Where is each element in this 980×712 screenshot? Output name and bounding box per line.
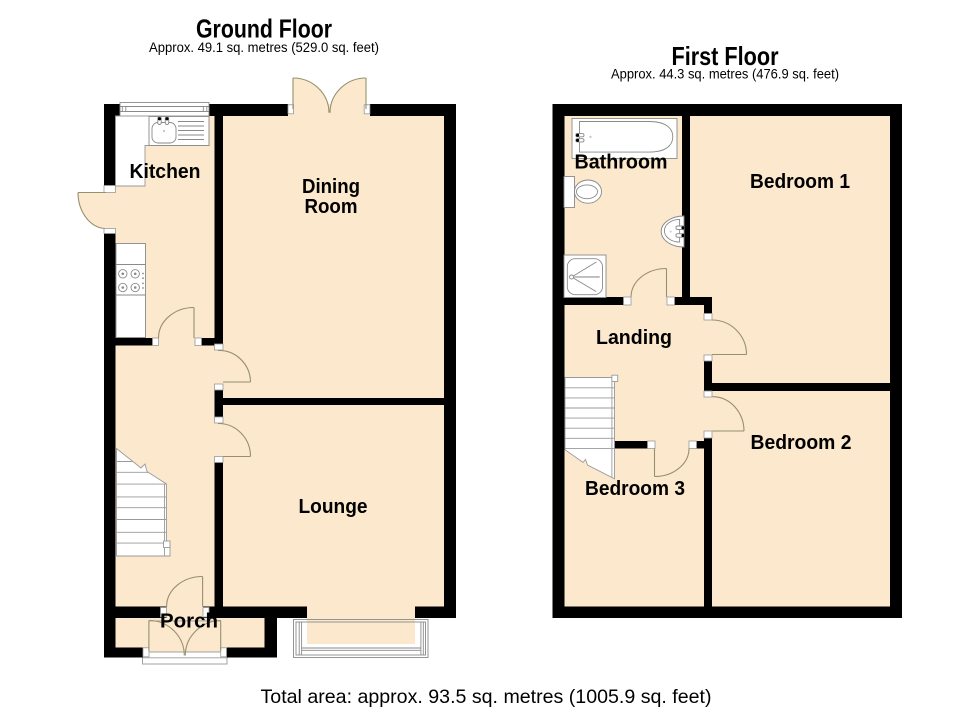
svg-text:Porch: Porch xyxy=(160,611,218,633)
svg-text:Bedroom 1: Bedroom 1 xyxy=(750,171,850,193)
svg-text:Approx. 49.1 sq. metres (529.0: Approx. 49.1 sq. metres (529.0 sq. feet) xyxy=(149,40,379,55)
svg-text:Total area: approx. 93.5 sq. m: Total area: approx. 93.5 sq. metres (100… xyxy=(261,686,712,708)
svg-text:Approx. 44.3 sq. metres (476.9: Approx. 44.3 sq. metres (476.9 sq. feet) xyxy=(611,67,839,82)
svg-text:Bedroom 2: Bedroom 2 xyxy=(751,432,852,454)
svg-text:Lounge: Lounge xyxy=(299,496,368,518)
svg-text:Landing: Landing xyxy=(596,327,672,349)
svg-text:Bedroom 3: Bedroom 3 xyxy=(585,478,685,500)
svg-text:Bathroom: Bathroom xyxy=(575,152,668,174)
svg-text:Ground Floor: Ground Floor xyxy=(196,14,332,44)
svg-text:Dining: Dining xyxy=(302,176,360,198)
svg-text:Room: Room xyxy=(305,196,358,218)
svg-text:Kitchen: Kitchen xyxy=(130,161,201,183)
